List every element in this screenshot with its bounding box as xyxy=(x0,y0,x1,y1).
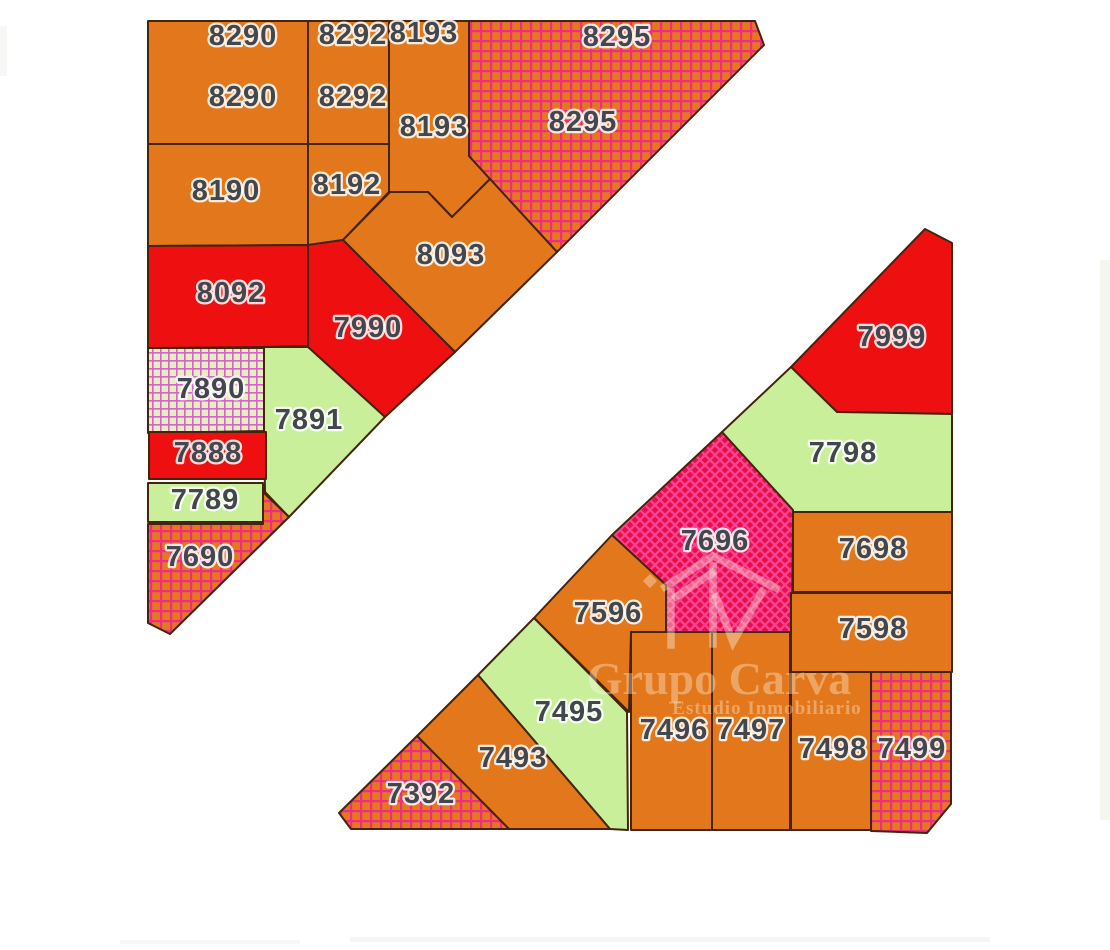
svg-text:7891: 7891 xyxy=(275,404,344,436)
svg-text:8292: 8292 xyxy=(319,19,388,51)
svg-text:7497: 7497 xyxy=(717,714,786,746)
svg-text:7690: 7690 xyxy=(166,541,235,573)
svg-text:7789: 7789 xyxy=(171,484,240,516)
svg-text:8295: 8295 xyxy=(549,106,618,138)
svg-text:8092: 8092 xyxy=(197,277,266,309)
svg-text:7990: 7990 xyxy=(334,312,403,344)
svg-text:8292: 8292 xyxy=(319,81,388,113)
svg-text:8290: 8290 xyxy=(209,20,278,52)
svg-text:8192: 8192 xyxy=(313,169,382,201)
svg-text:8193: 8193 xyxy=(400,111,469,143)
svg-text:Grupo Carva: Grupo Carva xyxy=(587,653,852,704)
svg-text:7598: 7598 xyxy=(839,613,908,645)
svg-text:8193: 8193 xyxy=(390,17,459,49)
svg-text:7392: 7392 xyxy=(387,778,456,810)
svg-text:7888: 7888 xyxy=(174,437,243,469)
svg-text:7596: 7596 xyxy=(574,597,643,629)
svg-text:7890: 7890 xyxy=(177,373,246,405)
svg-text:7499: 7499 xyxy=(878,733,947,765)
svg-text:7496: 7496 xyxy=(640,714,709,746)
svg-text:7798: 7798 xyxy=(809,437,878,469)
svg-text:8295: 8295 xyxy=(583,21,652,53)
svg-text:7698: 7698 xyxy=(839,533,908,565)
svg-text:8190: 8190 xyxy=(192,175,261,207)
svg-text:7696: 7696 xyxy=(681,525,750,557)
svg-text:7999: 7999 xyxy=(858,321,927,353)
svg-text:7495: 7495 xyxy=(535,696,604,728)
svg-text:8093: 8093 xyxy=(417,239,486,271)
svg-text:7498: 7498 xyxy=(799,733,868,765)
svg-text:7493: 7493 xyxy=(479,742,548,774)
svg-text:8290: 8290 xyxy=(209,81,278,113)
